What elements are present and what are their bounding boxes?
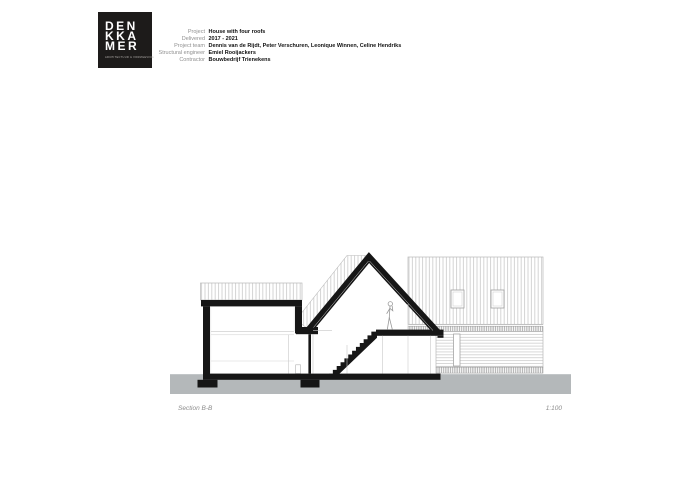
left-wall <box>203 306 210 377</box>
meta-label: Contractor <box>140 56 205 63</box>
meta-label: Structural engineer <box>140 49 205 56</box>
interior-detail <box>296 365 301 374</box>
rear-tall-window <box>454 334 461 366</box>
meta-value: Dennis van de Rijdt, Peter Verschuren, L… <box>209 42 402 49</box>
rear-plinth-band <box>436 367 543 373</box>
stairs <box>329 332 377 378</box>
meta-label: Project <box>140 28 205 35</box>
logo-wordmark: DEN KKA MER <box>105 21 139 51</box>
project-info-block: Project House with four roofs Delivered … <box>140 28 420 63</box>
rear-upper-volume <box>408 257 543 324</box>
section-drawing <box>160 245 580 400</box>
meta-label: Project team <box>140 42 205 49</box>
left-wing-section <box>201 283 303 374</box>
rear-building-elevation <box>408 257 543 373</box>
upper-floor-slab <box>376 330 444 336</box>
meta-value: Emiel Rooijackers <box>209 49 256 56</box>
meta-value: Bouwbedrijf Trienekens <box>209 56 271 63</box>
foundation-pad-left <box>198 380 218 388</box>
foundation-pad-middle <box>301 380 320 388</box>
middle-wall-lower <box>308 334 311 373</box>
flat-roof-slab <box>201 300 302 306</box>
human-figure <box>387 302 393 330</box>
drawing-scale: 1:100 <box>520 405 562 412</box>
figure-leg <box>387 318 389 330</box>
figure-torso <box>389 306 390 318</box>
drawing-caption: Section B-B <box>178 405 212 412</box>
figure-leg <box>389 318 392 330</box>
meta-row-contractor: Contractor Bouwbedrijf Trienekens <box>140 56 420 63</box>
eave-lip <box>438 336 444 338</box>
ground-floor-slab <box>203 374 441 380</box>
meta-row-team: Project team Dennis van de Rijdt, Peter … <box>140 42 420 49</box>
meta-value: 2017 - 2021 <box>209 35 238 42</box>
meta-label: Delivered <box>140 35 205 42</box>
figure-head <box>388 302 392 306</box>
meta-row-project: Project House with four roofs <box>140 28 420 35</box>
parapet-hatch <box>201 283 303 300</box>
section-cut-black <box>198 258 444 388</box>
meta-row-engineer: Structural engineer Emiel Rooijackers <box>140 49 420 56</box>
logo-line-3: MER <box>105 41 139 51</box>
rear-lower-volume <box>436 332 543 368</box>
meta-row-delivered: Delivered 2017 - 2021 <box>140 35 420 42</box>
meta-value: House with four roofs <box>209 28 266 35</box>
